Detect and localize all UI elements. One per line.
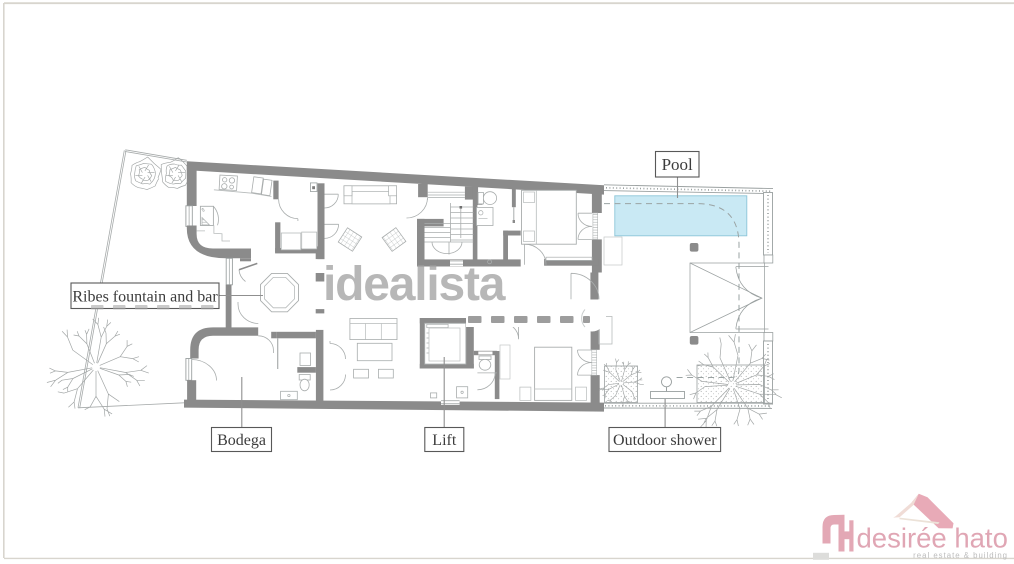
svg-text:desirée hato: desirée hato	[857, 523, 1008, 554]
svg-text:Bodega: Bodega	[217, 432, 266, 449]
svg-text:Outdoor shower: Outdoor shower	[613, 432, 717, 449]
svg-text:Ribes fountain and bar: Ribes fountain and bar	[72, 289, 218, 306]
svg-text:idealista: idealista	[323, 258, 506, 311]
svg-text:Pool: Pool	[662, 155, 693, 174]
svg-text:Lift: Lift	[432, 432, 457, 449]
svg-text:real estate & building: real estate & building	[913, 551, 1008, 560]
